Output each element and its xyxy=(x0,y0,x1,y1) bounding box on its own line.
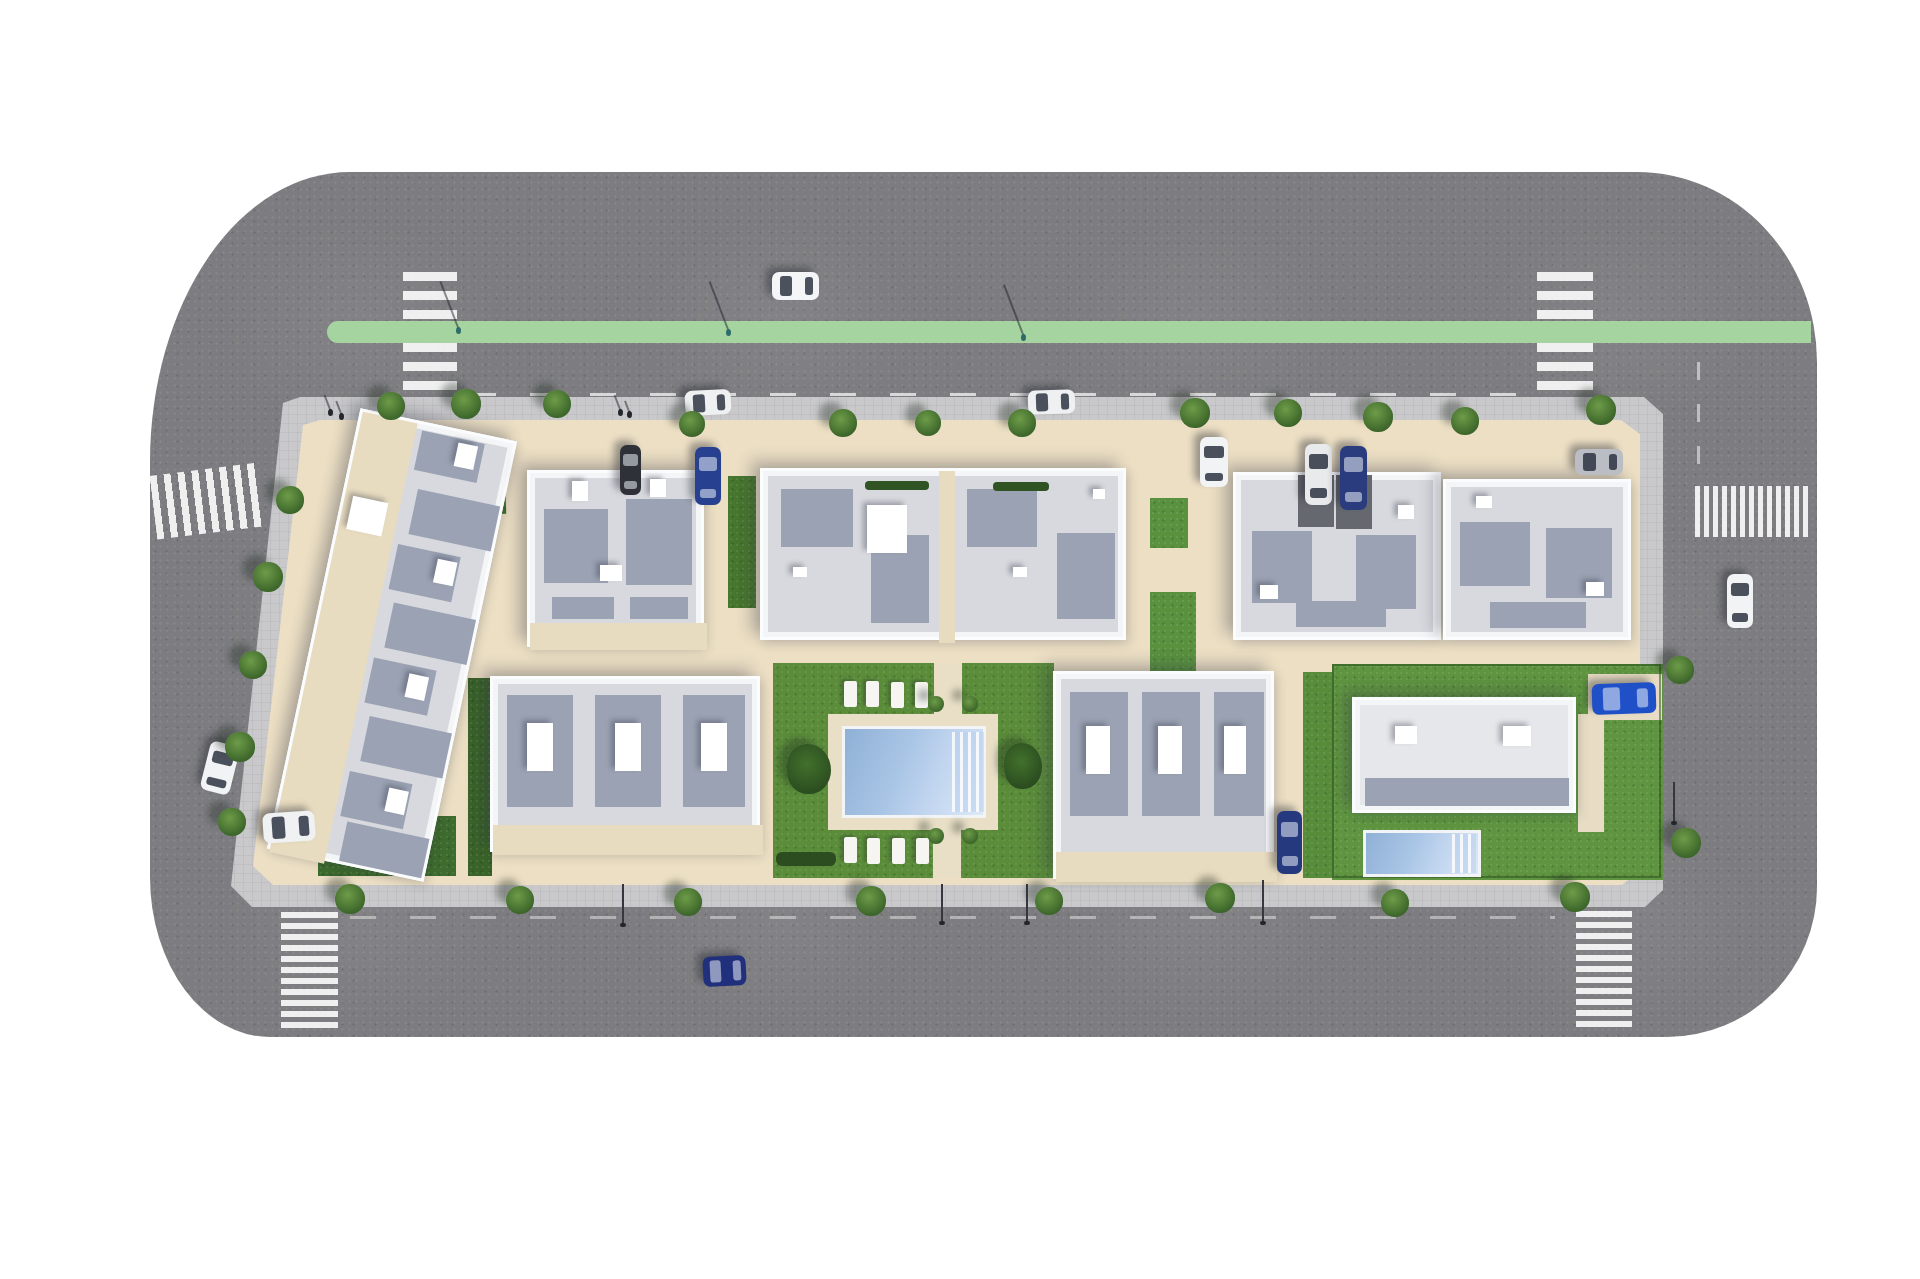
street-tree xyxy=(1363,402,1393,432)
van-dark-parked xyxy=(620,445,641,495)
garden-small-tree xyxy=(962,828,978,844)
windshield xyxy=(692,394,705,413)
person xyxy=(328,409,333,416)
roof-shade xyxy=(1460,522,1530,586)
lane-dash-line xyxy=(1697,362,1700,474)
person xyxy=(1021,334,1026,341)
lawn-texture xyxy=(728,476,756,608)
rear-window xyxy=(733,961,742,981)
crosswalk xyxy=(1537,272,1593,321)
building-top-right-2 xyxy=(1443,479,1631,640)
roof-structure xyxy=(1224,726,1246,774)
garden-bush xyxy=(787,744,831,794)
rear-window xyxy=(1205,473,1223,481)
car-silver-top-right xyxy=(1575,449,1623,475)
sun-lounger xyxy=(892,838,905,864)
roof-hedge xyxy=(865,481,929,490)
roof-shade xyxy=(781,489,853,547)
car-blue-parked-mid xyxy=(695,447,721,505)
car-white-parked-bay xyxy=(1305,444,1332,505)
building-top-right-1 xyxy=(1233,472,1441,640)
rear-window xyxy=(700,489,717,498)
windshield xyxy=(1583,453,1595,472)
lawn xyxy=(728,476,756,608)
rear-window xyxy=(1061,394,1070,410)
car-blue-parked-right xyxy=(1277,811,1302,874)
street-light-head xyxy=(939,921,945,925)
car-white-top-road xyxy=(772,272,819,300)
street-tree xyxy=(543,390,571,418)
roof-structure xyxy=(1086,726,1110,774)
roof-structure xyxy=(1503,726,1531,746)
garden-bush xyxy=(1004,743,1042,789)
street-light-pole xyxy=(1673,782,1675,824)
crosswalk xyxy=(1695,486,1808,537)
street-light-pole xyxy=(622,884,624,926)
villa-pool-steps xyxy=(1452,834,1476,873)
roof-structure xyxy=(1398,505,1414,519)
street-tree xyxy=(1008,409,1036,437)
building-central xyxy=(760,468,1126,640)
street-tree xyxy=(451,389,481,419)
sun-lounger xyxy=(844,837,857,863)
roof-structure xyxy=(1093,489,1105,499)
sun-lounger xyxy=(867,838,880,864)
villa xyxy=(1352,697,1576,813)
windshield xyxy=(780,276,792,296)
roof-structure xyxy=(1158,726,1182,774)
rear-window xyxy=(299,816,310,836)
rear-window xyxy=(1282,856,1298,866)
street-tree xyxy=(377,392,405,420)
street-tree xyxy=(1274,399,1302,427)
rear-window xyxy=(1310,488,1327,498)
person xyxy=(627,411,632,418)
roof-shade xyxy=(552,597,614,619)
lawn xyxy=(1150,498,1188,548)
windshield xyxy=(1602,687,1619,710)
windshield xyxy=(1309,454,1328,469)
crosswalk xyxy=(1537,343,1593,398)
rear-window xyxy=(206,776,227,788)
rear-window xyxy=(805,277,813,295)
rear-window xyxy=(1609,454,1618,471)
roof-structure xyxy=(1476,496,1492,508)
street-tree xyxy=(1035,887,1063,915)
sun-lounger xyxy=(891,682,904,708)
garden-small-tree xyxy=(962,696,978,712)
pool-steps xyxy=(952,732,984,812)
roof-structure xyxy=(1013,567,1027,577)
windshield xyxy=(623,454,638,466)
car-white-parked-top-2 xyxy=(1028,389,1076,415)
rear-window xyxy=(717,394,726,410)
street-tree xyxy=(225,732,255,762)
roof-structure xyxy=(600,565,622,581)
building-top-left xyxy=(527,470,704,647)
street-tree xyxy=(674,888,702,916)
street-tree xyxy=(1671,828,1701,858)
roof-structure xyxy=(1395,726,1417,744)
street-tree xyxy=(276,486,304,514)
roof-structure xyxy=(615,723,641,771)
car-white-driveway xyxy=(1200,437,1228,487)
person xyxy=(618,409,623,416)
street-tree xyxy=(239,651,267,679)
windshield xyxy=(710,960,722,982)
person xyxy=(456,327,461,334)
roof-terrace xyxy=(939,471,955,643)
street-tree xyxy=(915,410,941,436)
crosswalk xyxy=(403,272,457,321)
rear-window xyxy=(624,481,637,489)
roof-shade xyxy=(626,499,692,585)
garden-hedge xyxy=(776,852,836,866)
street-tree xyxy=(856,886,886,916)
windshield xyxy=(1281,822,1299,837)
street-tree xyxy=(335,884,365,914)
van-blue-parked-bay xyxy=(1340,446,1367,510)
building-bottom-right xyxy=(1053,671,1274,879)
rear-window xyxy=(1732,613,1749,622)
garden-small-tree xyxy=(928,696,944,712)
car-white-parked-left xyxy=(262,810,316,844)
crosswalk xyxy=(150,463,267,540)
lawn-texture xyxy=(1150,498,1188,548)
site-plan-scene xyxy=(0,0,1920,1279)
car-blue-bottom-road xyxy=(702,955,747,987)
windshield xyxy=(699,457,717,471)
roof-shade xyxy=(1365,778,1569,806)
street-tree xyxy=(1205,883,1235,913)
street-light-pole xyxy=(1262,880,1264,924)
crosswalk xyxy=(1576,911,1632,1029)
person xyxy=(339,413,344,420)
windshield xyxy=(1204,446,1224,458)
rear-window xyxy=(1636,688,1648,708)
windshield xyxy=(1036,393,1049,411)
roof-shade xyxy=(630,597,688,619)
street-tree xyxy=(506,886,534,914)
street-tree xyxy=(1451,407,1479,435)
street-tree xyxy=(829,409,857,437)
roof-structure xyxy=(527,723,553,771)
street-light-head xyxy=(1024,921,1030,925)
sun-lounger xyxy=(844,681,857,707)
roof-structure xyxy=(650,479,666,497)
street-tree xyxy=(1381,889,1409,917)
roof-shade xyxy=(1296,601,1386,627)
roof-structure xyxy=(701,723,727,771)
roof-structure xyxy=(1586,582,1604,596)
lawn-texture xyxy=(1150,592,1196,680)
roof-structure xyxy=(793,567,807,577)
lawn xyxy=(468,678,492,876)
street-light-pole xyxy=(941,884,943,924)
lawn-texture xyxy=(468,678,492,876)
windshield xyxy=(1344,457,1363,472)
rear-window xyxy=(1345,492,1362,502)
crosswalk xyxy=(281,912,338,1029)
building-bottom-left xyxy=(490,676,760,852)
crosswalk xyxy=(403,343,457,398)
garden-small-tree xyxy=(928,828,944,844)
roof-structure xyxy=(572,481,588,501)
sun-lounger xyxy=(916,838,929,864)
street-tree xyxy=(1180,398,1210,428)
street-light-head xyxy=(1671,821,1677,825)
lane-dash-line xyxy=(350,916,1555,919)
car-blue-villa xyxy=(1591,682,1656,715)
person xyxy=(726,329,731,336)
sun-lounger xyxy=(866,681,879,707)
roof-hedge xyxy=(993,482,1049,491)
street-tree xyxy=(1586,395,1616,425)
lawn xyxy=(1150,592,1196,680)
roof-shade xyxy=(967,489,1037,547)
street-tree xyxy=(679,411,705,437)
street-light-pole xyxy=(1026,884,1028,924)
bike-lane xyxy=(327,321,1811,343)
windshield xyxy=(1731,583,1749,596)
roof-shade xyxy=(544,509,608,583)
street-tree xyxy=(218,808,246,836)
roof-structure xyxy=(346,496,388,537)
roof-terrace xyxy=(1056,852,1277,882)
street-tree xyxy=(1560,882,1590,912)
street-tree xyxy=(253,562,283,592)
street-light-head xyxy=(620,923,626,927)
car-white-right-road xyxy=(1727,574,1753,628)
roof-shade xyxy=(1057,533,1115,619)
roof-shade xyxy=(1356,535,1416,609)
windshield xyxy=(271,816,286,838)
street-light-head xyxy=(1260,921,1266,925)
roof-shade xyxy=(1490,602,1586,628)
roof-terrace xyxy=(493,825,763,855)
roof-terrace xyxy=(530,623,707,650)
roof-structure xyxy=(867,505,907,553)
street-tree xyxy=(1666,656,1694,684)
lane-dash-line xyxy=(470,393,1525,396)
sun-lounger xyxy=(915,682,928,708)
roof-structure xyxy=(1260,585,1278,599)
